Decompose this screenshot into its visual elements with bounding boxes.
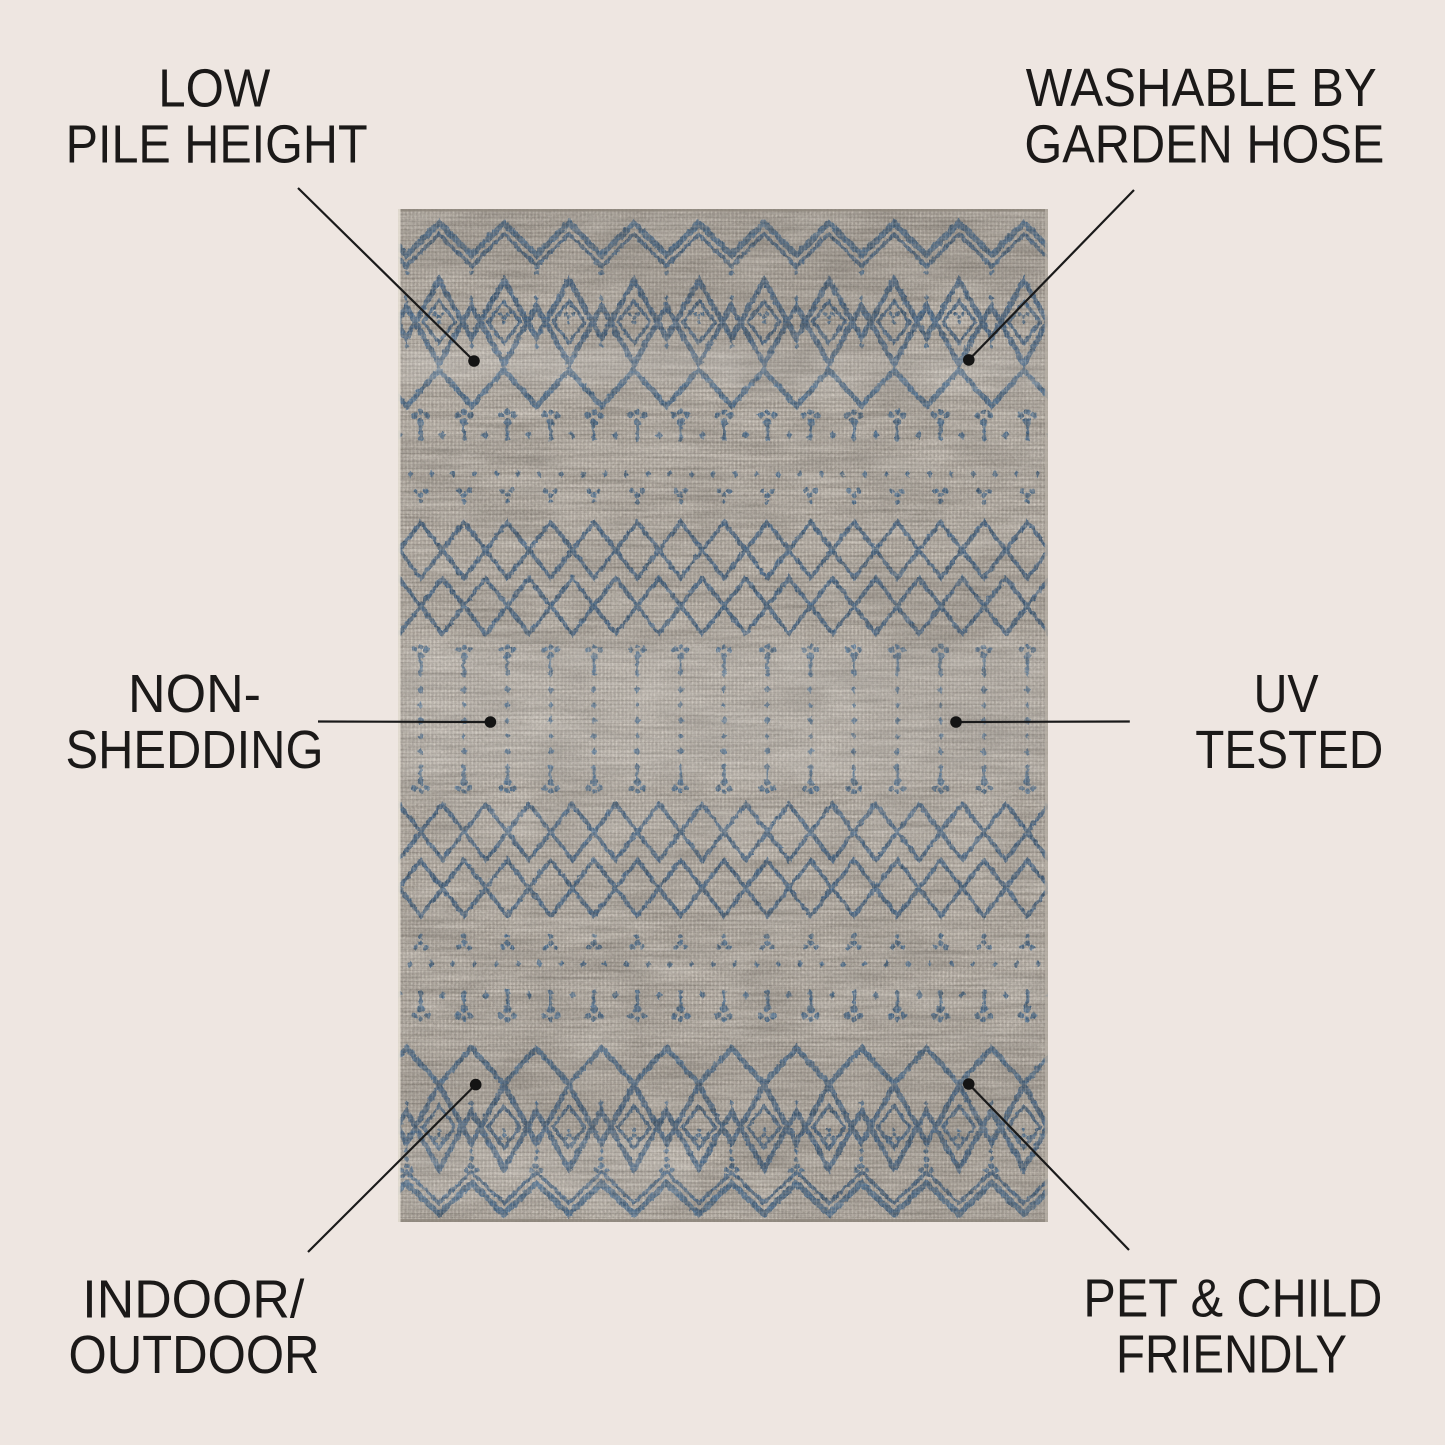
svg-text:PILE HEIGHT: PILE HEIGHT bbox=[66, 114, 368, 174]
svg-text:FRIENDLY: FRIENDLY bbox=[1116, 1325, 1347, 1385]
svg-text:TESTED: TESTED bbox=[1195, 720, 1383, 780]
svg-text:UV: UV bbox=[1254, 664, 1319, 724]
svg-text:OUTDOOR: OUTDOOR bbox=[69, 1325, 320, 1385]
svg-text:LOW: LOW bbox=[158, 58, 270, 118]
svg-text:WASHABLE BY: WASHABLE BY bbox=[1026, 58, 1377, 118]
svg-text:NON-: NON- bbox=[128, 664, 261, 724]
svg-text:INDOOR/: INDOOR/ bbox=[82, 1269, 304, 1329]
svg-text:PET & CHILD: PET & CHILD bbox=[1083, 1269, 1382, 1329]
svg-text:SHEDDING: SHEDDING bbox=[66, 720, 324, 780]
svg-text:GARDEN HOSE: GARDEN HOSE bbox=[1024, 114, 1384, 174]
